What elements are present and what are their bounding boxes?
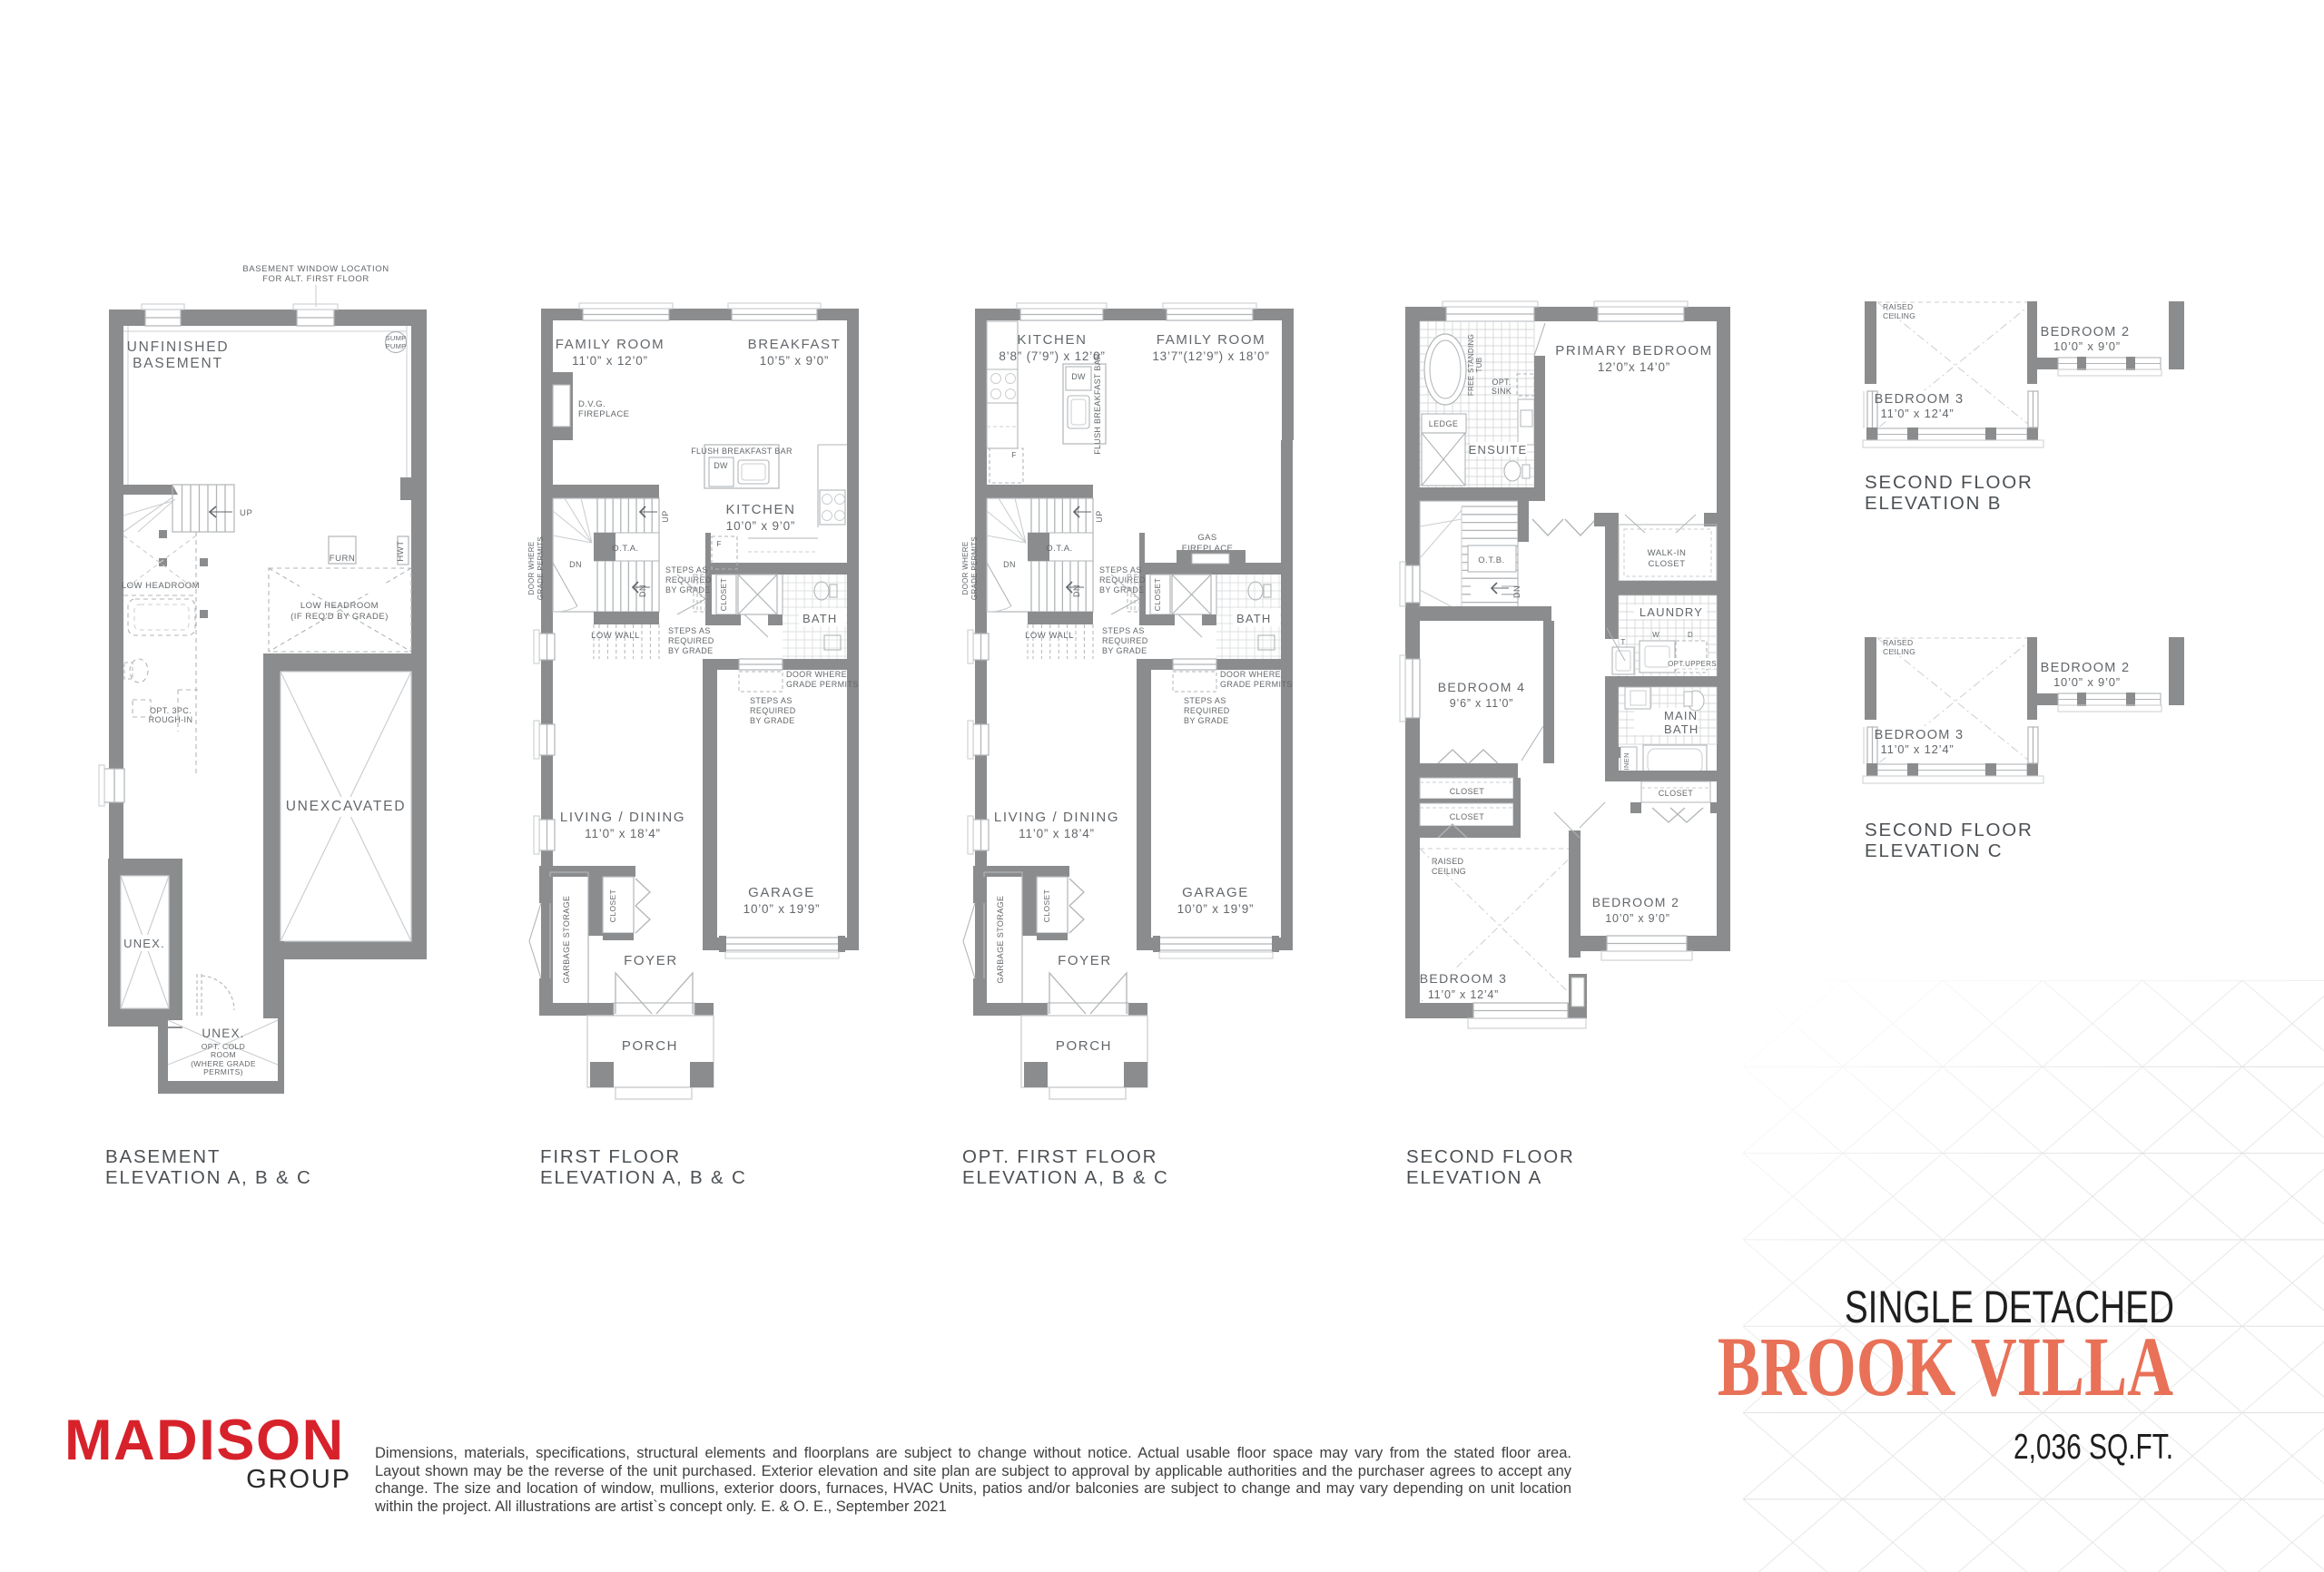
- svg-text:11’0” x 12’4”: 11’0” x 12’4”: [1881, 407, 1955, 420]
- svg-text:DOOR WHERE: DOOR WHERE: [527, 542, 536, 595]
- svg-text:FURN: FURN: [330, 554, 355, 564]
- svg-text:O.T.A.: O.T.A.: [612, 544, 638, 554]
- svg-text:CLOSET: CLOSET: [719, 578, 728, 611]
- svg-text:CLOSET: CLOSET: [1450, 787, 1485, 796]
- svg-text:BEDROOM 2: BEDROOM 2: [2041, 325, 2131, 339]
- svg-text:F: F: [1011, 450, 1017, 459]
- svg-text:BEDROOM 3: BEDROOM 3: [1875, 728, 1965, 742]
- svg-text:LAUNDRY: LAUNDRY: [1640, 605, 1703, 619]
- svg-text:OPT. 3PC.: OPT. 3PC.: [150, 706, 192, 715]
- svg-text:10’0” x 9’0”: 10’0” x 9’0”: [2053, 339, 2121, 353]
- svg-text:BATH: BATH: [1236, 612, 1272, 625]
- svg-text:BASEMENT: BASEMENT: [133, 356, 223, 371]
- svg-text:PUMP: PUMP: [386, 342, 407, 350]
- svg-text:FAMILY ROOM: FAMILY ROOM: [1157, 332, 1265, 348]
- svg-text:10’0” x 19’9”: 10’0” x 19’9”: [1177, 902, 1255, 916]
- svg-text:ELEVATION A, B & C: ELEVATION A, B & C: [962, 1167, 1169, 1188]
- svg-text:OPT.UPPERS: OPT.UPPERS: [1668, 660, 1717, 668]
- svg-text:SUMP: SUMP: [386, 334, 407, 342]
- svg-text:LEDGE: LEDGE: [1429, 419, 1459, 428]
- svg-text:BY GRADE: BY GRADE: [1184, 716, 1229, 725]
- svg-text:GRADE PERMITS: GRADE PERMITS: [1220, 680, 1293, 689]
- svg-text:KITCHEN: KITCHEN: [1017, 332, 1087, 348]
- svg-text:ELEVATION C: ELEVATION C: [1865, 840, 2003, 861]
- svg-text:UP: UP: [1095, 510, 1104, 523]
- svg-text:FOYER: FOYER: [1058, 953, 1112, 968]
- svg-text:DOOR WHERE: DOOR WHERE: [786, 670, 847, 679]
- svg-text:REQUIRED: REQUIRED: [665, 575, 712, 585]
- svg-text:LIVING / DINING: LIVING / DINING: [560, 810, 685, 825]
- svg-text:REQUIRED: REQUIRED: [668, 636, 714, 645]
- svg-text:BY GRADE: BY GRADE: [1099, 585, 1145, 594]
- svg-text:ELEVATION B: ELEVATION B: [1865, 493, 2002, 514]
- svg-text:STEPS AS: STEPS AS: [1099, 565, 1142, 575]
- svg-text:FLUSH BREAKFAST BAR: FLUSH BREAKFAST BAR: [691, 447, 793, 456]
- svg-text:BEDROOM 2: BEDROOM 2: [2041, 661, 2131, 675]
- svg-text:11’0” x 12’4”: 11’0” x 12’4”: [1428, 988, 1499, 1001]
- svg-text:ELEVATION A, B & C: ELEVATION A, B & C: [540, 1167, 747, 1188]
- svg-text:FIREPLACE: FIREPLACE: [578, 409, 629, 419]
- svg-text:F: F: [716, 539, 722, 548]
- svg-text:11’0” x 18’4”: 11’0” x 18’4”: [1019, 827, 1095, 840]
- svg-text:STEPS AS: STEPS AS: [750, 696, 793, 705]
- svg-text:9’6” x 11’0”: 9’6” x 11’0”: [1450, 697, 1514, 710]
- svg-text:GARBAGE STORAGE: GARBAGE STORAGE: [562, 896, 571, 984]
- svg-text:DW: DW: [714, 461, 728, 470]
- svg-text:CLOSET: CLOSET: [1153, 578, 1162, 611]
- svg-text:11’0” x 18’4”: 11’0” x 18’4”: [585, 827, 661, 840]
- svg-text:DN: DN: [1072, 585, 1081, 597]
- svg-text:LIVING / DINING: LIVING / DINING: [994, 810, 1119, 825]
- svg-text:10’0” x 9’0”: 10’0” x 9’0”: [2053, 675, 2121, 689]
- svg-text:SECOND FLOOR: SECOND FLOOR: [1406, 1146, 1575, 1167]
- svg-text:10’0” x 19’9”: 10’0” x 19’9”: [743, 902, 821, 916]
- svg-text:OPT. FIRST FLOOR: OPT. FIRST FLOOR: [962, 1146, 1157, 1167]
- svg-text:DOOR WHERE: DOOR WHERE: [1220, 670, 1281, 679]
- svg-text:REQUIRED: REQUIRED: [1099, 575, 1146, 585]
- svg-text:STEPS AS: STEPS AS: [1184, 696, 1226, 705]
- svg-text:LOW HEADROOM: LOW HEADROOM: [122, 581, 200, 591]
- svg-text:BY GRADE: BY GRADE: [668, 646, 714, 655]
- svg-text:DW: DW: [1071, 372, 1086, 381]
- svg-text:STEPS AS: STEPS AS: [1102, 626, 1145, 635]
- svg-text:GRADE PERMITS: GRADE PERMITS: [786, 680, 859, 689]
- svg-text:REQUIRED: REQUIRED: [1184, 706, 1230, 715]
- svg-text:PORCH: PORCH: [622, 1038, 678, 1054]
- svg-text:CLOSET: CLOSET: [1648, 559, 1685, 569]
- svg-text:BY GRADE: BY GRADE: [665, 585, 711, 594]
- svg-text:LOW WALL: LOW WALL: [1025, 631, 1074, 641]
- svg-text:GRADE PERMITS: GRADE PERMITS: [970, 536, 979, 600]
- svg-text:10’0” x 9’0”: 10’0” x 9’0”: [1605, 912, 1669, 925]
- svg-text:DN: DN: [638, 585, 647, 597]
- svg-text:GARBAGE STORAGE: GARBAGE STORAGE: [996, 896, 1005, 984]
- svg-text:GARAGE: GARAGE: [1182, 885, 1249, 900]
- svg-text:11’0” x 12’0”: 11’0” x 12’0”: [572, 354, 648, 368]
- svg-text:ENSUITE: ENSUITE: [1469, 443, 1528, 457]
- svg-text:OPT.: OPT.: [1492, 378, 1511, 387]
- svg-text:D.V.G.: D.V.G.: [578, 399, 606, 409]
- svg-text:BEDROOM 3: BEDROOM 3: [1420, 971, 1508, 986]
- svg-text:ROOM: ROOM: [211, 1050, 236, 1059]
- svg-text:BY GRADE: BY GRADE: [1102, 646, 1147, 655]
- svg-text:FAMILY ROOM: FAMILY ROOM: [556, 337, 665, 352]
- svg-text:GRADE PERMITS: GRADE PERMITS: [537, 536, 545, 600]
- svg-text:UNFINISHED: UNFINISHED: [127, 339, 230, 355]
- svg-text:BATH: BATH: [1664, 722, 1699, 736]
- svg-text:PORCH: PORCH: [1056, 1038, 1112, 1054]
- svg-text:SINK: SINK: [1492, 387, 1512, 396]
- svg-text:13’7”(12’9”) x 18’0”: 13’7”(12’9”) x 18’0”: [1152, 349, 1269, 363]
- svg-text:WALK-IN: WALK-IN: [1648, 548, 1687, 558]
- svg-text:GARAGE: GARAGE: [748, 885, 815, 900]
- svg-text:CEILING: CEILING: [1432, 867, 1466, 876]
- svg-text:CLOSET: CLOSET: [1042, 889, 1051, 922]
- svg-text:BEDROOM 3: BEDROOM 3: [1875, 392, 1965, 407]
- svg-text:DN: DN: [1512, 585, 1521, 598]
- svg-text:STEPS AS: STEPS AS: [665, 565, 708, 575]
- svg-text:O.T.A.: O.T.A.: [1046, 544, 1072, 554]
- svg-text:FIRST FLOOR: FIRST FLOOR: [540, 1146, 681, 1167]
- svg-text:REQUIRED: REQUIRED: [1102, 636, 1148, 645]
- svg-text:ELEVATION A: ELEVATION A: [1406, 1167, 1542, 1188]
- svg-text:CEILING: CEILING: [1883, 647, 1915, 656]
- svg-text:CLOSET: CLOSET: [608, 889, 617, 922]
- svg-text:UP: UP: [661, 510, 670, 523]
- svg-text:UNEX.: UNEX.: [202, 1027, 244, 1040]
- svg-text:UNEX.: UNEX.: [123, 937, 165, 950]
- svg-text:FREE STANDING: FREE STANDING: [1467, 334, 1475, 396]
- svg-text:T: T: [1620, 638, 1625, 646]
- svg-text:FLUSH BREAKFAST BAR: FLUSH BREAKFAST BAR: [1093, 353, 1102, 455]
- svg-text:CLOSET: CLOSET: [1450, 812, 1485, 821]
- svg-text:FOYER: FOYER: [624, 953, 678, 968]
- svg-text:UP: UP: [240, 508, 252, 518]
- svg-text:11’0” x 12’4”: 11’0” x 12’4”: [1881, 742, 1955, 756]
- svg-text:10’5” x 9’0”: 10’5” x 9’0”: [760, 354, 829, 368]
- svg-text:DN: DN: [569, 560, 582, 569]
- svg-text:PRIMARY BEDROOM: PRIMARY BEDROOM: [1555, 343, 1712, 359]
- svg-text:TUB: TUB: [1475, 358, 1483, 373]
- svg-text:HWT: HWT: [396, 540, 406, 561]
- svg-text:ROUGH-IN: ROUGH-IN: [149, 715, 193, 724]
- svg-text:BEDROOM 2: BEDROOM 2: [1592, 895, 1680, 909]
- svg-text:W: W: [1652, 631, 1659, 639]
- svg-text:KITCHEN: KITCHEN: [725, 502, 795, 517]
- svg-text:DN: DN: [1003, 560, 1016, 569]
- svg-text:(IF REQ'D BY GRADE): (IF REQ'D BY GRADE): [290, 612, 389, 622]
- svg-text:10’0” x 9’0”: 10’0” x 9’0”: [726, 519, 795, 533]
- svg-text:MAIN: MAIN: [1664, 709, 1698, 722]
- svg-text:UNEXCAVATED: UNEXCAVATED: [286, 799, 407, 814]
- svg-text:LOW HEADROOM: LOW HEADROOM: [300, 601, 379, 611]
- svg-text:BREAKFAST: BREAKFAST: [748, 337, 842, 352]
- svg-text:SECOND FLOOR: SECOND FLOOR: [1865, 472, 2033, 493]
- svg-text:CEILING: CEILING: [1883, 311, 1915, 320]
- svg-text:GAS: GAS: [1197, 533, 1216, 543]
- svg-text:BY GRADE: BY GRADE: [750, 716, 795, 725]
- svg-text:D: D: [1688, 631, 1693, 639]
- svg-text:CLOSET: CLOSET: [1659, 789, 1694, 798]
- svg-text:BATH: BATH: [803, 612, 838, 625]
- svg-text:BASEMENT WINDOW LOCATION: BASEMENT WINDOW LOCATION: [242, 264, 389, 274]
- svg-text:SECOND FLOOR: SECOND FLOOR: [1865, 820, 2033, 840]
- svg-text:O.T.B.: O.T.B.: [1478, 555, 1504, 565]
- svg-text:PERMITS): PERMITS): [203, 1067, 243, 1076]
- svg-text:DOOR WHERE: DOOR WHERE: [961, 542, 970, 595]
- svg-text:STEPS AS: STEPS AS: [668, 626, 711, 635]
- svg-text:BASEMENT: BASEMENT: [105, 1146, 221, 1167]
- svg-text:LOW WALL: LOW WALL: [591, 631, 640, 641]
- svg-text:ELEVATION A, B & C: ELEVATION A, B & C: [105, 1167, 312, 1188]
- svg-text:8’8” (7’9”) x 12’0”: 8’8” (7’9”) x 12’0”: [999, 349, 1105, 363]
- svg-text:REQUIRED: REQUIRED: [750, 706, 796, 715]
- svg-text:FOR ALT. FIRST FLOOR: FOR ALT. FIRST FLOOR: [262, 274, 369, 284]
- svg-text:BEDROOM 4: BEDROOM 4: [1438, 680, 1526, 694]
- svg-text:12’0”x 14’0”: 12’0”x 14’0”: [1598, 360, 1670, 374]
